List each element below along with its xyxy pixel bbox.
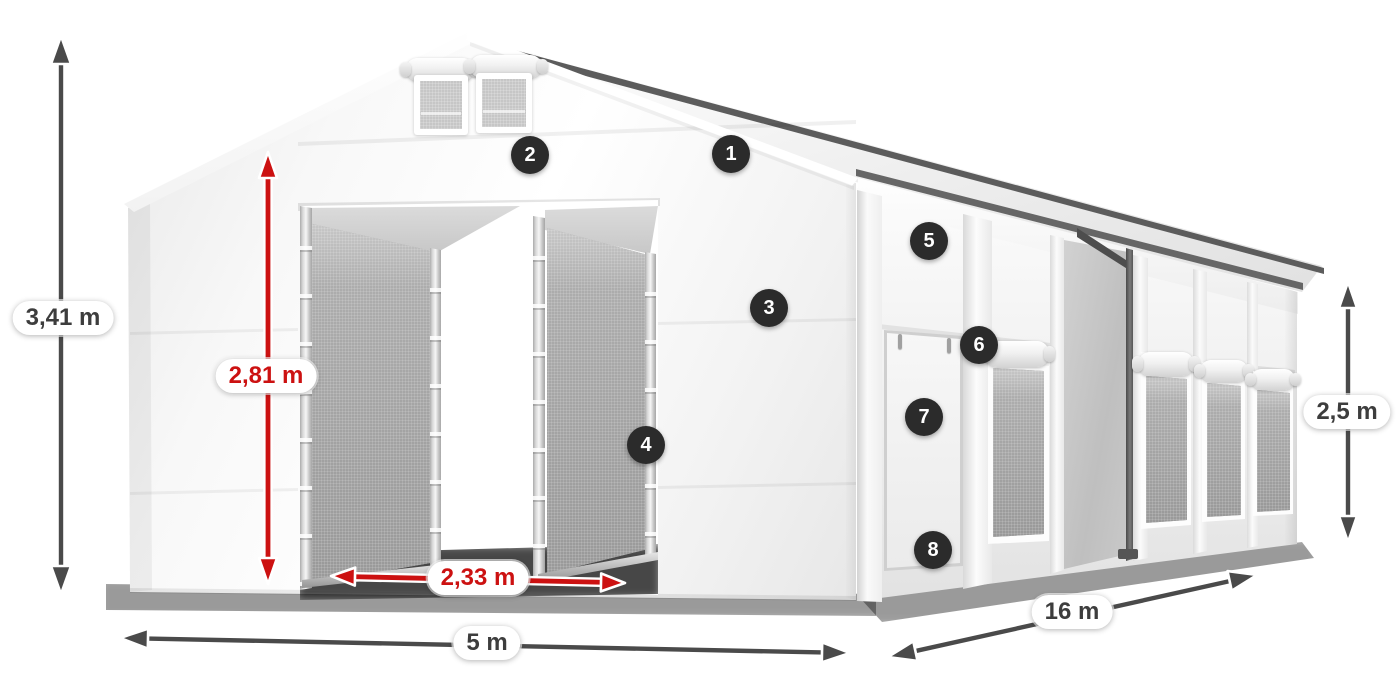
callout-badge-1: 1 [712, 135, 750, 173]
gable-corner-seam [128, 196, 154, 592]
dimension-label-wall-height: 2,5 m [1303, 395, 1390, 429]
front-gate-right-mesh-panel [545, 226, 651, 576]
gable-right-corner-shade [844, 181, 858, 602]
side-window-mesh [1207, 382, 1242, 517]
gable-vent-mesh [482, 79, 526, 127]
dimension-label-entrance-height: 2,81 m [216, 359, 317, 393]
front-gate-left-mesh-panel [306, 221, 440, 586]
window-roll [1138, 352, 1194, 376]
side-open-doorway [1063, 239, 1129, 569]
side-window-mesh [993, 367, 1045, 537]
side-window-mesh [1257, 389, 1291, 512]
side-corner-pillar [856, 189, 884, 603]
gate-post [428, 246, 443, 572]
doorway-base-plate [1118, 549, 1138, 559]
dimension-label-front-width: 5 m [453, 626, 520, 660]
side-pillar [1049, 234, 1066, 576]
dimension-label-entrance-width: 2,33 m [428, 561, 529, 595]
dimension-label-side-length: 16 m [1032, 595, 1113, 629]
gate-post [531, 214, 547, 583]
callout-badge-5: 5 [910, 222, 948, 260]
door-zipper-pull [898, 334, 902, 349]
callout-badge-6: 6 [960, 326, 998, 364]
callout-badge-2: 2 [511, 136, 549, 174]
callout-badge-7: 7 [905, 398, 943, 436]
callout-badge-4: 4 [627, 426, 665, 464]
window-roll [1200, 360, 1248, 382]
vent-ledge [421, 112, 461, 115]
tent-dimension-diagram: 3,41 m 2,81 m 2,33 m 5 m 16 m 2,5 m 1 2 … [0, 0, 1400, 700]
gate-post [643, 250, 658, 558]
side-window-mesh [1146, 375, 1188, 523]
vent-ledge [483, 110, 525, 113]
window-roll [1251, 369, 1295, 390]
dimension-label-total-height: 3,41 m [13, 301, 114, 335]
gable-vent-mesh [420, 81, 462, 129]
door-zipper-pull [947, 338, 951, 353]
callout-badge-3: 3 [750, 289, 788, 327]
callout-badge-8: 8 [914, 531, 952, 569]
gate-post [298, 204, 314, 592]
